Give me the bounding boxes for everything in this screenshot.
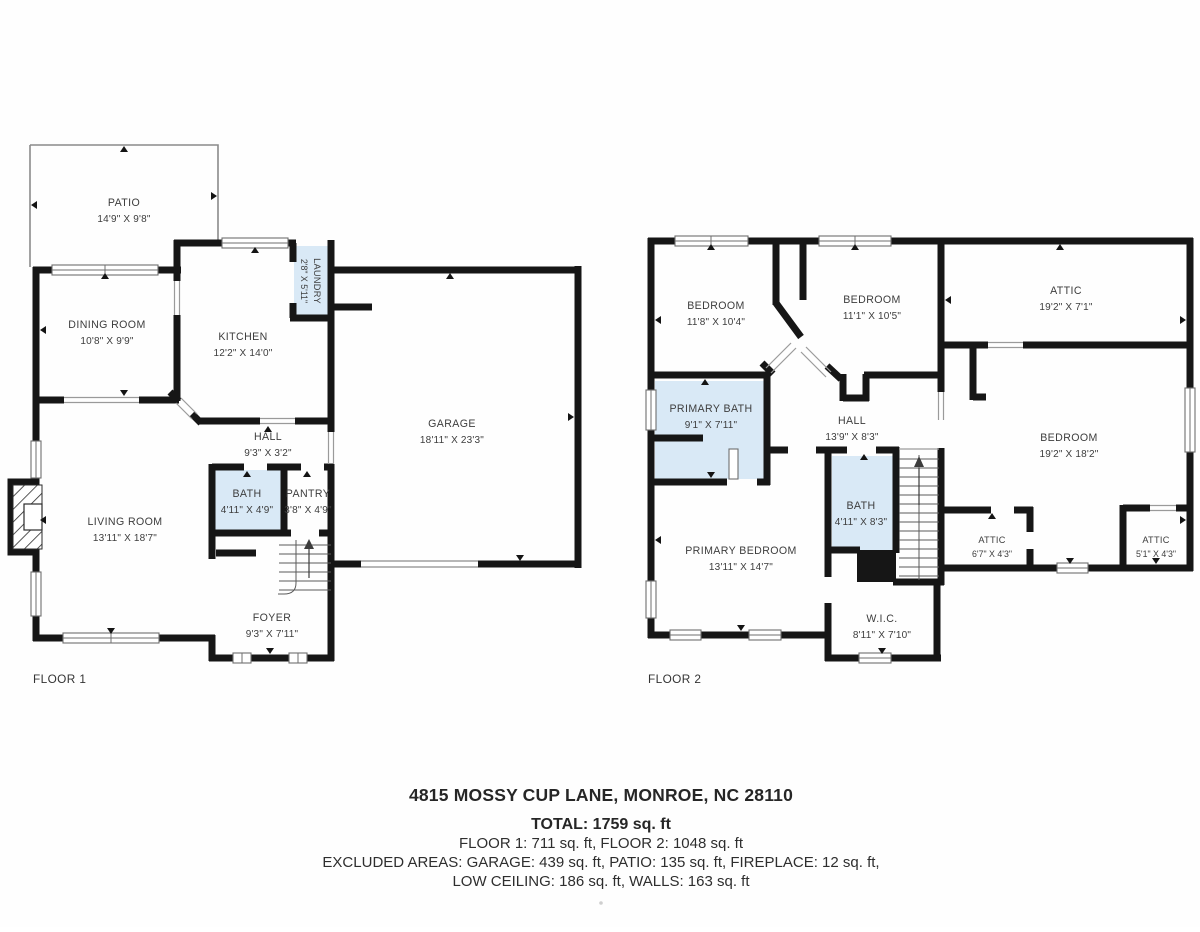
fireplace	[13, 485, 42, 549]
wic-label: W.I.C.	[866, 613, 897, 625]
floor-areas-line: FLOOR 1: 711 sq. ft, FLOOR 2: 1048 sq. f…	[459, 835, 744, 852]
foyer-label: FOYER	[253, 612, 292, 624]
kitchen-label: KITCHEN	[218, 331, 267, 343]
bedroom2-dims: 11'1" X 10'5"	[843, 311, 902, 322]
garage-label: GARAGE	[428, 418, 476, 430]
attic-right-dims: 5'1" X 4'3"	[1136, 549, 1176, 559]
primary-bath-door	[729, 449, 738, 479]
bedroom3-dims: 19'2" X 18'2"	[1039, 449, 1098, 460]
primary-bedroom-dims: 13'11" X 14'7"	[709, 562, 773, 573]
hall2-label: HALL	[838, 415, 866, 427]
bath1-dims: 4'11" X 4'9"	[221, 505, 274, 516]
floor2-tag: FLOOR 2	[648, 672, 701, 686]
floor2-stairs	[899, 455, 939, 580]
floor2-plan: BEDROOM 11'8" X 10'4" BEDROOM 11'1" X 10…	[646, 236, 1195, 686]
excluded-areas-line1: EXCLUDED AREAS: GARAGE: 439 sq. ft, PATI…	[322, 854, 879, 871]
hall1-label: HALL	[254, 431, 282, 443]
kitchen-dims: 12'2" X 14'0"	[213, 348, 272, 359]
bath1-label: BATH	[232, 488, 261, 500]
pantry-dims: 3'8" X 4'9"	[284, 505, 332, 516]
primary-bedroom-label: PRIMARY BEDROOM	[685, 545, 797, 557]
hall1-dims: 9'3" X 3'2"	[244, 448, 292, 459]
foyer-dims: 9'3" X 7'11"	[246, 629, 299, 640]
floor1-walls	[11, 240, 581, 661]
floor-plan-page: PATIO 14'9" X 9'8" DINING ROOM 10'8" X 9…	[0, 0, 1200, 927]
attic-right-label: ATTIC	[1142, 535, 1169, 545]
floor1-bath-highlight	[215, 470, 281, 530]
bedroom1-dims: 11'8" X 10'4"	[687, 317, 746, 328]
total-area-line: TOTAL: 1759 sq. ft	[531, 816, 672, 833]
floor1-plan: PATIO 14'9" X 9'8" DINING ROOM 10'8" X 9…	[11, 145, 581, 686]
pantry-label: PANTRY	[286, 488, 330, 500]
primary-bath-label: PRIMARY BATH	[669, 403, 752, 415]
bath2-label: BATH	[846, 500, 875, 512]
attic-mid-label: ATTIC	[978, 535, 1005, 545]
summary-text: 4815 MOSSY CUP LANE, MONROE, NC 28110 TO…	[322, 785, 879, 905]
floor1-stairs	[278, 539, 331, 594]
primary-bath-dims: 9'1" X 7'11"	[685, 420, 738, 431]
patio-dims: 14'9" X 9'8"	[97, 214, 151, 225]
footer-dot	[599, 901, 603, 905]
floor-plan-canvas: PATIO 14'9" X 9'8" DINING ROOM 10'8" X 9…	[0, 0, 1200, 927]
dining-room-dims: 10'8" X 9'9"	[80, 336, 134, 347]
living-room-label: LIVING ROOM	[87, 516, 162, 528]
excluded-areas-line2: LOW CEILING: 186 sq. ft, WALLS: 163 sq. …	[452, 873, 750, 890]
floor1-tag: FLOOR 1	[33, 672, 86, 686]
dining-room-label: DINING ROOM	[68, 319, 145, 331]
bedroom2-label: BEDROOM	[843, 294, 901, 306]
laundry-dims: 2'8" X 5'11"	[299, 259, 309, 303]
attic-top-label: ATTIC	[1050, 285, 1082, 297]
wic-dims: 8'11" X 7'10"	[853, 630, 912, 641]
laundry-label: LAUNDRY	[312, 258, 322, 304]
attic-mid-dims: 6'7" X 4'3"	[972, 549, 1012, 559]
bedroom3-label: BEDROOM	[1040, 432, 1098, 444]
bedroom1-label: BEDROOM	[687, 300, 745, 312]
patio-label: PATIO	[108, 197, 140, 209]
address-line: 4815 MOSSY CUP LANE, MONROE, NC 28110	[409, 785, 793, 805]
low-ceiling-chunk	[857, 550, 896, 582]
hall2-dims: 13'9" X 8'3"	[825, 432, 879, 443]
garage-dims: 18'11" X 23'3"	[420, 435, 484, 446]
living-room-dims: 13'11" X 18'7"	[93, 533, 157, 544]
bath2-dims: 4'11" X 8'3"	[835, 517, 888, 528]
attic-top-dims: 19'2" X 7'1"	[1039, 302, 1093, 313]
